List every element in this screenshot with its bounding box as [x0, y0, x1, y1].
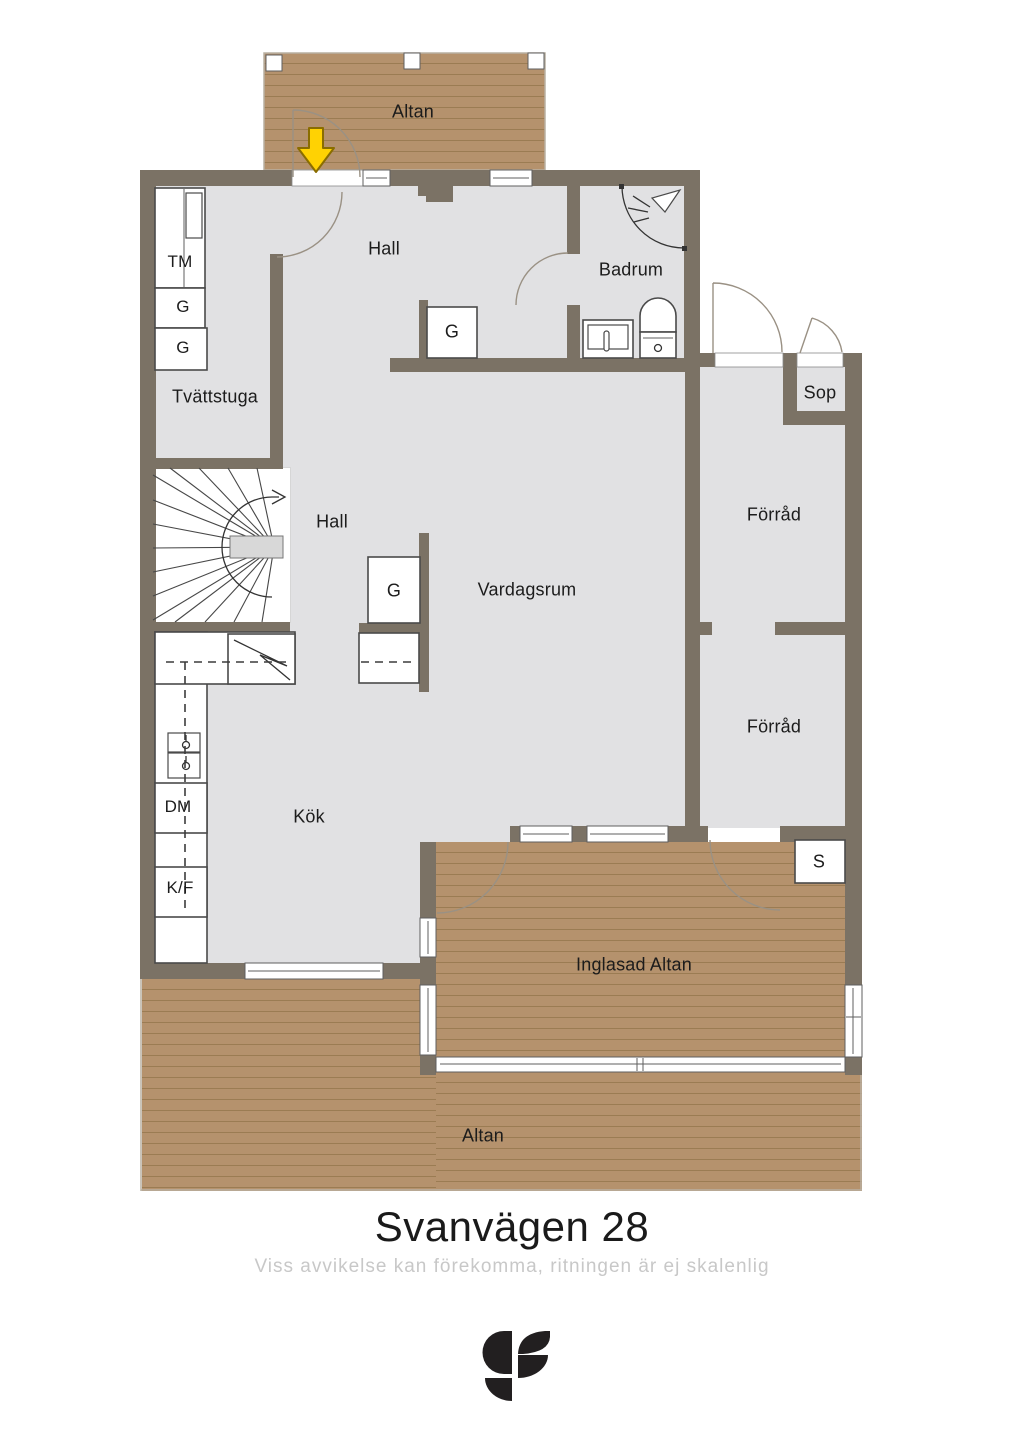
toilet [640, 298, 676, 332]
deck-post [266, 55, 282, 71]
room-label-hall-lower: Hall [316, 512, 348, 533]
fixture-label-g-hall-upper: G [445, 322, 459, 343]
entrance-arrow-icon [298, 128, 334, 172]
room-label-forrad-upper: Förråd [747, 505, 801, 526]
plan-disclaimer: Viss avvikelse kan förekomma, ritningen … [0, 1256, 1024, 1278]
bathroom-door-swing [516, 253, 568, 305]
entry-door-opening [292, 170, 363, 186]
windows-and-openings [245, 170, 862, 1072]
room-label-forrad-lower: Förråd [747, 717, 801, 738]
fixture-label-dm: DM [165, 797, 192, 817]
deck-post [528, 53, 544, 69]
fixture-label-kf: K/F [166, 878, 193, 898]
fixture-label-s: S [813, 852, 825, 873]
storage-deck-door-swing [710, 840, 780, 910]
kitchen-deck-door-swing [437, 842, 508, 913]
fixture-label-g-hall-lower: G [387, 581, 401, 602]
sf-logo-icon [480, 1326, 560, 1410]
storage-door-opening [715, 353, 783, 367]
fixture-label-g1: G [176, 297, 189, 317]
sink [168, 753, 200, 778]
laundry-door-swing [277, 192, 342, 257]
fixture-label-tm: TM [168, 252, 193, 272]
room-label-badrum: Badrum [599, 260, 663, 281]
floor-plan: Altan Hall Badrum Tvättstuga Hall Vardag… [0, 0, 1024, 1448]
storage-exterior-door-swing [713, 283, 782, 353]
shower-head-icon [652, 190, 680, 212]
cabinet [359, 633, 419, 683]
room-label-hall-upper: Hall [368, 239, 400, 260]
entry-door-swing [293, 110, 360, 177]
sop-door-opening [797, 353, 843, 367]
plan-title: Svanvägen 28 [0, 1203, 1024, 1251]
stair-landing [230, 536, 283, 558]
room-label-tvattstuga: Tvättstuga [172, 387, 258, 408]
walls [140, 170, 862, 1075]
room-label-altan-top: Altan [392, 102, 434, 123]
deck-post [404, 53, 420, 69]
room-label-sop: Sop [804, 383, 837, 404]
room-label-kok: Kök [293, 807, 325, 828]
room-label-vardagsrum: Vardagsrum [478, 580, 577, 601]
staircase [153, 468, 285, 622]
room-label-altan-bottom: Altan [462, 1126, 504, 1147]
room-label-inglasad-altan: Inglasad Altan [576, 955, 692, 976]
fixture-label-g2: G [176, 338, 189, 358]
sop-door-swing [800, 318, 842, 353]
